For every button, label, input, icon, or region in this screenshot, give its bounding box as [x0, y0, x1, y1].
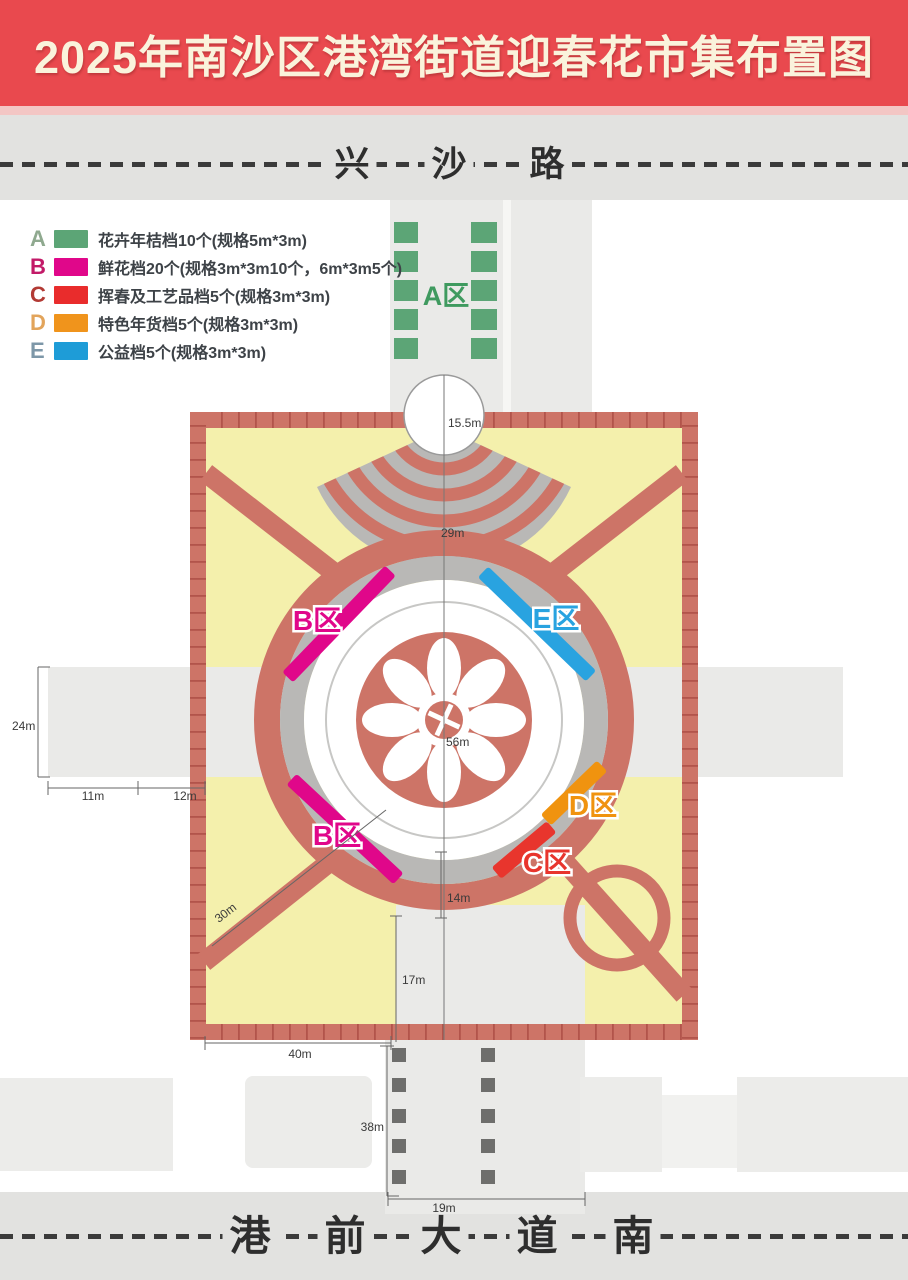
zone-a-stalls: [394, 222, 497, 359]
road-bottom-char: 前: [318, 1216, 373, 1257]
legend-label: 特色年货档5个(规格3m*3m): [98, 311, 298, 335]
flower-center-icon: [417, 693, 471, 747]
north-corridor: [390, 200, 592, 414]
dim-south-inner-gap: 17m: [402, 973, 425, 987]
legend-swatch-d: [54, 314, 88, 332]
legend-label: 花卉年桔档10个(规格5m*3m): [98, 227, 307, 251]
road-bottom-char: 南: [606, 1216, 661, 1257]
road-bottom-char: 大: [414, 1216, 469, 1257]
road-bottom-char: 道: [510, 1216, 565, 1257]
dim-west-seg-b: 12m: [173, 789, 196, 803]
flower-market-layout-map: 2025年南沙区港湾街道迎春花市集布置图 兴 沙 路 港 前 大 道 南 A 花…: [0, 0, 908, 1280]
dim-diagonal-path: 30m: [212, 900, 239, 925]
page-title: 2025年南沙区港湾街道迎春花市集布置图: [34, 21, 874, 86]
zone-b-label-lower: B区: [313, 820, 361, 851]
legend-row-b: B 鲜花档20个(规格3m*3m10个，6m*3m5个): [30, 253, 402, 281]
dimension-lines: [38, 667, 585, 1206]
legend-label: 鲜花档20个(规格3m*3m10个，6m*3m5个): [98, 255, 402, 279]
legend-letter: A: [30, 228, 54, 250]
east-corridor: [600, 667, 843, 777]
legend: A 花卉年桔档10个(规格5m*3m) B 鲜花档20个(规格3m*3m10个，…: [30, 225, 402, 365]
plaza-ground: [190, 412, 698, 1040]
road-bottom-char: 港: [223, 1216, 278, 1257]
dim-south-corridor-length: 38m: [361, 1120, 384, 1134]
zone-e-label: E区: [533, 603, 580, 634]
legend-row-e: E 公益档5个(规格3m*3m): [30, 337, 402, 365]
road-top-xingsha: 兴 沙 路: [0, 115, 908, 200]
legend-row-c: C 挥春及工艺品档5个(规格3m*3m): [30, 281, 402, 309]
legend-letter: E: [30, 340, 54, 362]
header-banner: 2025年南沙区港湾街道迎春花市集布置图: [0, 0, 908, 106]
legend-letter: D: [30, 312, 54, 334]
entrance-fan: [317, 428, 571, 568]
legend-swatch-a: [54, 230, 88, 248]
zone-b-bar-upper: [282, 566, 396, 683]
plaza-brick-border: [190, 412, 698, 1040]
entrance-circle: [404, 375, 484, 455]
zone-c-label: C区: [523, 847, 571, 878]
dim-west-seg-a: 11m: [82, 789, 104, 803]
west-corridor: [48, 667, 300, 777]
south-corridor: [385, 1040, 585, 1214]
zone-c-bar: [492, 821, 557, 879]
legend-letter: B: [30, 256, 54, 278]
dim-west-corridor-width: 24m: [12, 719, 35, 733]
legend-swatch-e: [54, 342, 88, 360]
zone-b-label-upper: B区: [293, 605, 341, 636]
zone-d-bar: [541, 761, 608, 826]
zone-b-bar-lower: [286, 774, 403, 885]
dim-center-diameter: 56m: [446, 735, 469, 749]
central-circle: [267, 543, 621, 897]
adjacent-buildings: [0, 1076, 908, 1172]
zone-a-label: A区: [423, 281, 470, 311]
dim-ring-top: 29m: [441, 526, 464, 540]
legend-row-d: D 特色年货档5个(规格3m*3m): [30, 309, 402, 337]
legend-swatch-b: [54, 258, 88, 276]
flower-motif: [362, 638, 526, 802]
road-top-char: 沙: [424, 147, 473, 182]
dim-south-yard-width: 40m: [288, 1047, 311, 1061]
legend-swatch-c: [54, 286, 88, 304]
zone-e-bar: [478, 567, 596, 682]
road-bottom-gangqian: 港 前 大 道 南: [0, 1192, 908, 1280]
zone-bars: [282, 566, 607, 885]
legend-letter: C: [30, 284, 54, 306]
legend-row-a: A 花卉年桔档10个(规格5m*3m): [30, 225, 402, 253]
south-inner-corridor: [396, 905, 585, 1027]
legend-label: 挥春及工艺品档5个(规格3m*3m): [98, 283, 330, 307]
dim-ring-bottom-gap: 14m: [447, 891, 470, 905]
dim-entrance-width: 15.5m: [448, 416, 481, 430]
diagonal-paths: [204, 473, 684, 995]
south-corridor-bollards: [392, 1048, 495, 1184]
road-top-char: 路: [522, 147, 571, 182]
zone-d-label: D区: [569, 790, 617, 821]
garden-ring-feature: [570, 871, 664, 965]
road-top-char: 兴: [327, 147, 376, 182]
header-divider: [0, 106, 908, 115]
legend-label: 公益档5个(规格3m*3m): [98, 339, 266, 363]
